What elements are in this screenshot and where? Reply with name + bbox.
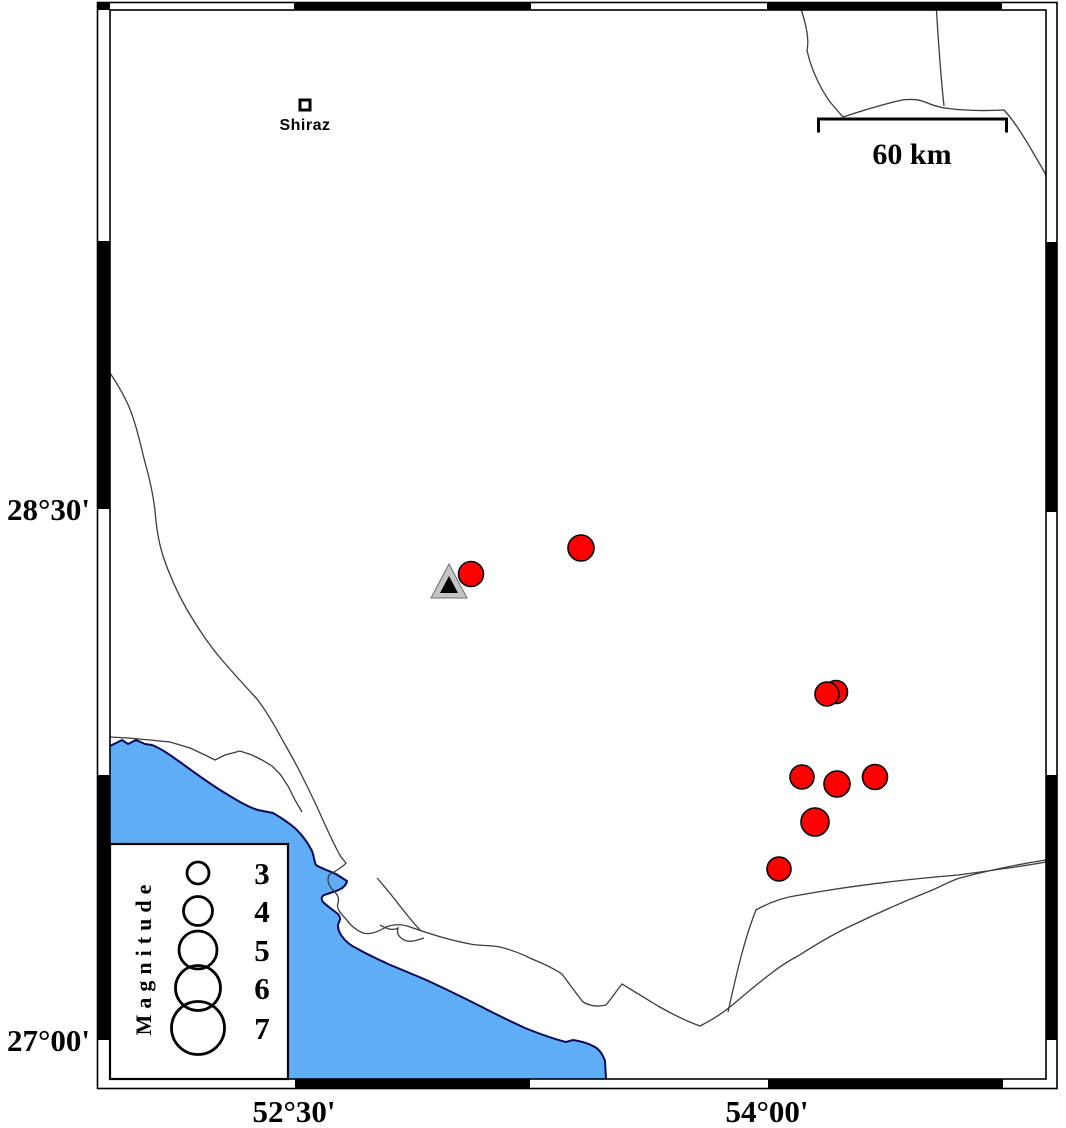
lon-label-5230: 52°30' [252, 1094, 335, 1128]
frame-corner-segment [98, 3, 111, 11]
magnitude-legend: Magnitude 34567 [110, 844, 288, 1079]
event-marker [790, 765, 814, 789]
event-marker [568, 535, 594, 561]
scale-bar-line [817, 118, 1008, 121]
city-square-icon [300, 100, 310, 110]
lat-label-2700: 27°00' [7, 1023, 90, 1058]
seismicity-map-figure: Shiraz 60 km Magnitude 34567 28°30' 27°0… [0, 0, 1066, 1128]
frame-left-segment-1 [98, 241, 111, 509]
legend-label-mag-4: 4 [254, 894, 270, 929]
event-marker [767, 857, 791, 881]
legend-title: Magnitude [131, 879, 156, 1036]
event-marker [824, 771, 850, 797]
legend-label-mag-7: 7 [254, 1011, 270, 1046]
legend-label-mag-6: 6 [254, 971, 270, 1006]
event-marker [815, 682, 839, 706]
lat-label-2830: 28°30' [7, 492, 90, 527]
event-marker [801, 808, 829, 836]
legend-label-mag-5: 5 [254, 933, 270, 968]
scale-bar-right-tick [1005, 118, 1008, 133]
frame-bottom-segment-1 [295, 1079, 530, 1089]
frame-right-segment-1 [1046, 242, 1057, 512]
scale-bar-left-tick [817, 118, 820, 133]
legend-label-mag-3: 3 [254, 856, 270, 891]
event-marker [459, 562, 484, 587]
map-canvas: Shiraz 60 km Magnitude 34567 28°30' 27°0… [0, 0, 1066, 1128]
event-marker [863, 765, 888, 790]
frame-top-segment-1 [294, 3, 531, 11]
scale-bar-label: 60 km [872, 138, 951, 171]
frame-bottom-segment-2 [768, 1079, 1003, 1089]
frame-right-segment-2 [1046, 775, 1057, 1040]
city-label: Shiraz [279, 117, 330, 134]
lon-label-5400: 54°00' [725, 1094, 808, 1128]
frame-top-segment-2 [767, 3, 1002, 11]
frame-left-segment-2 [98, 775, 111, 1040]
